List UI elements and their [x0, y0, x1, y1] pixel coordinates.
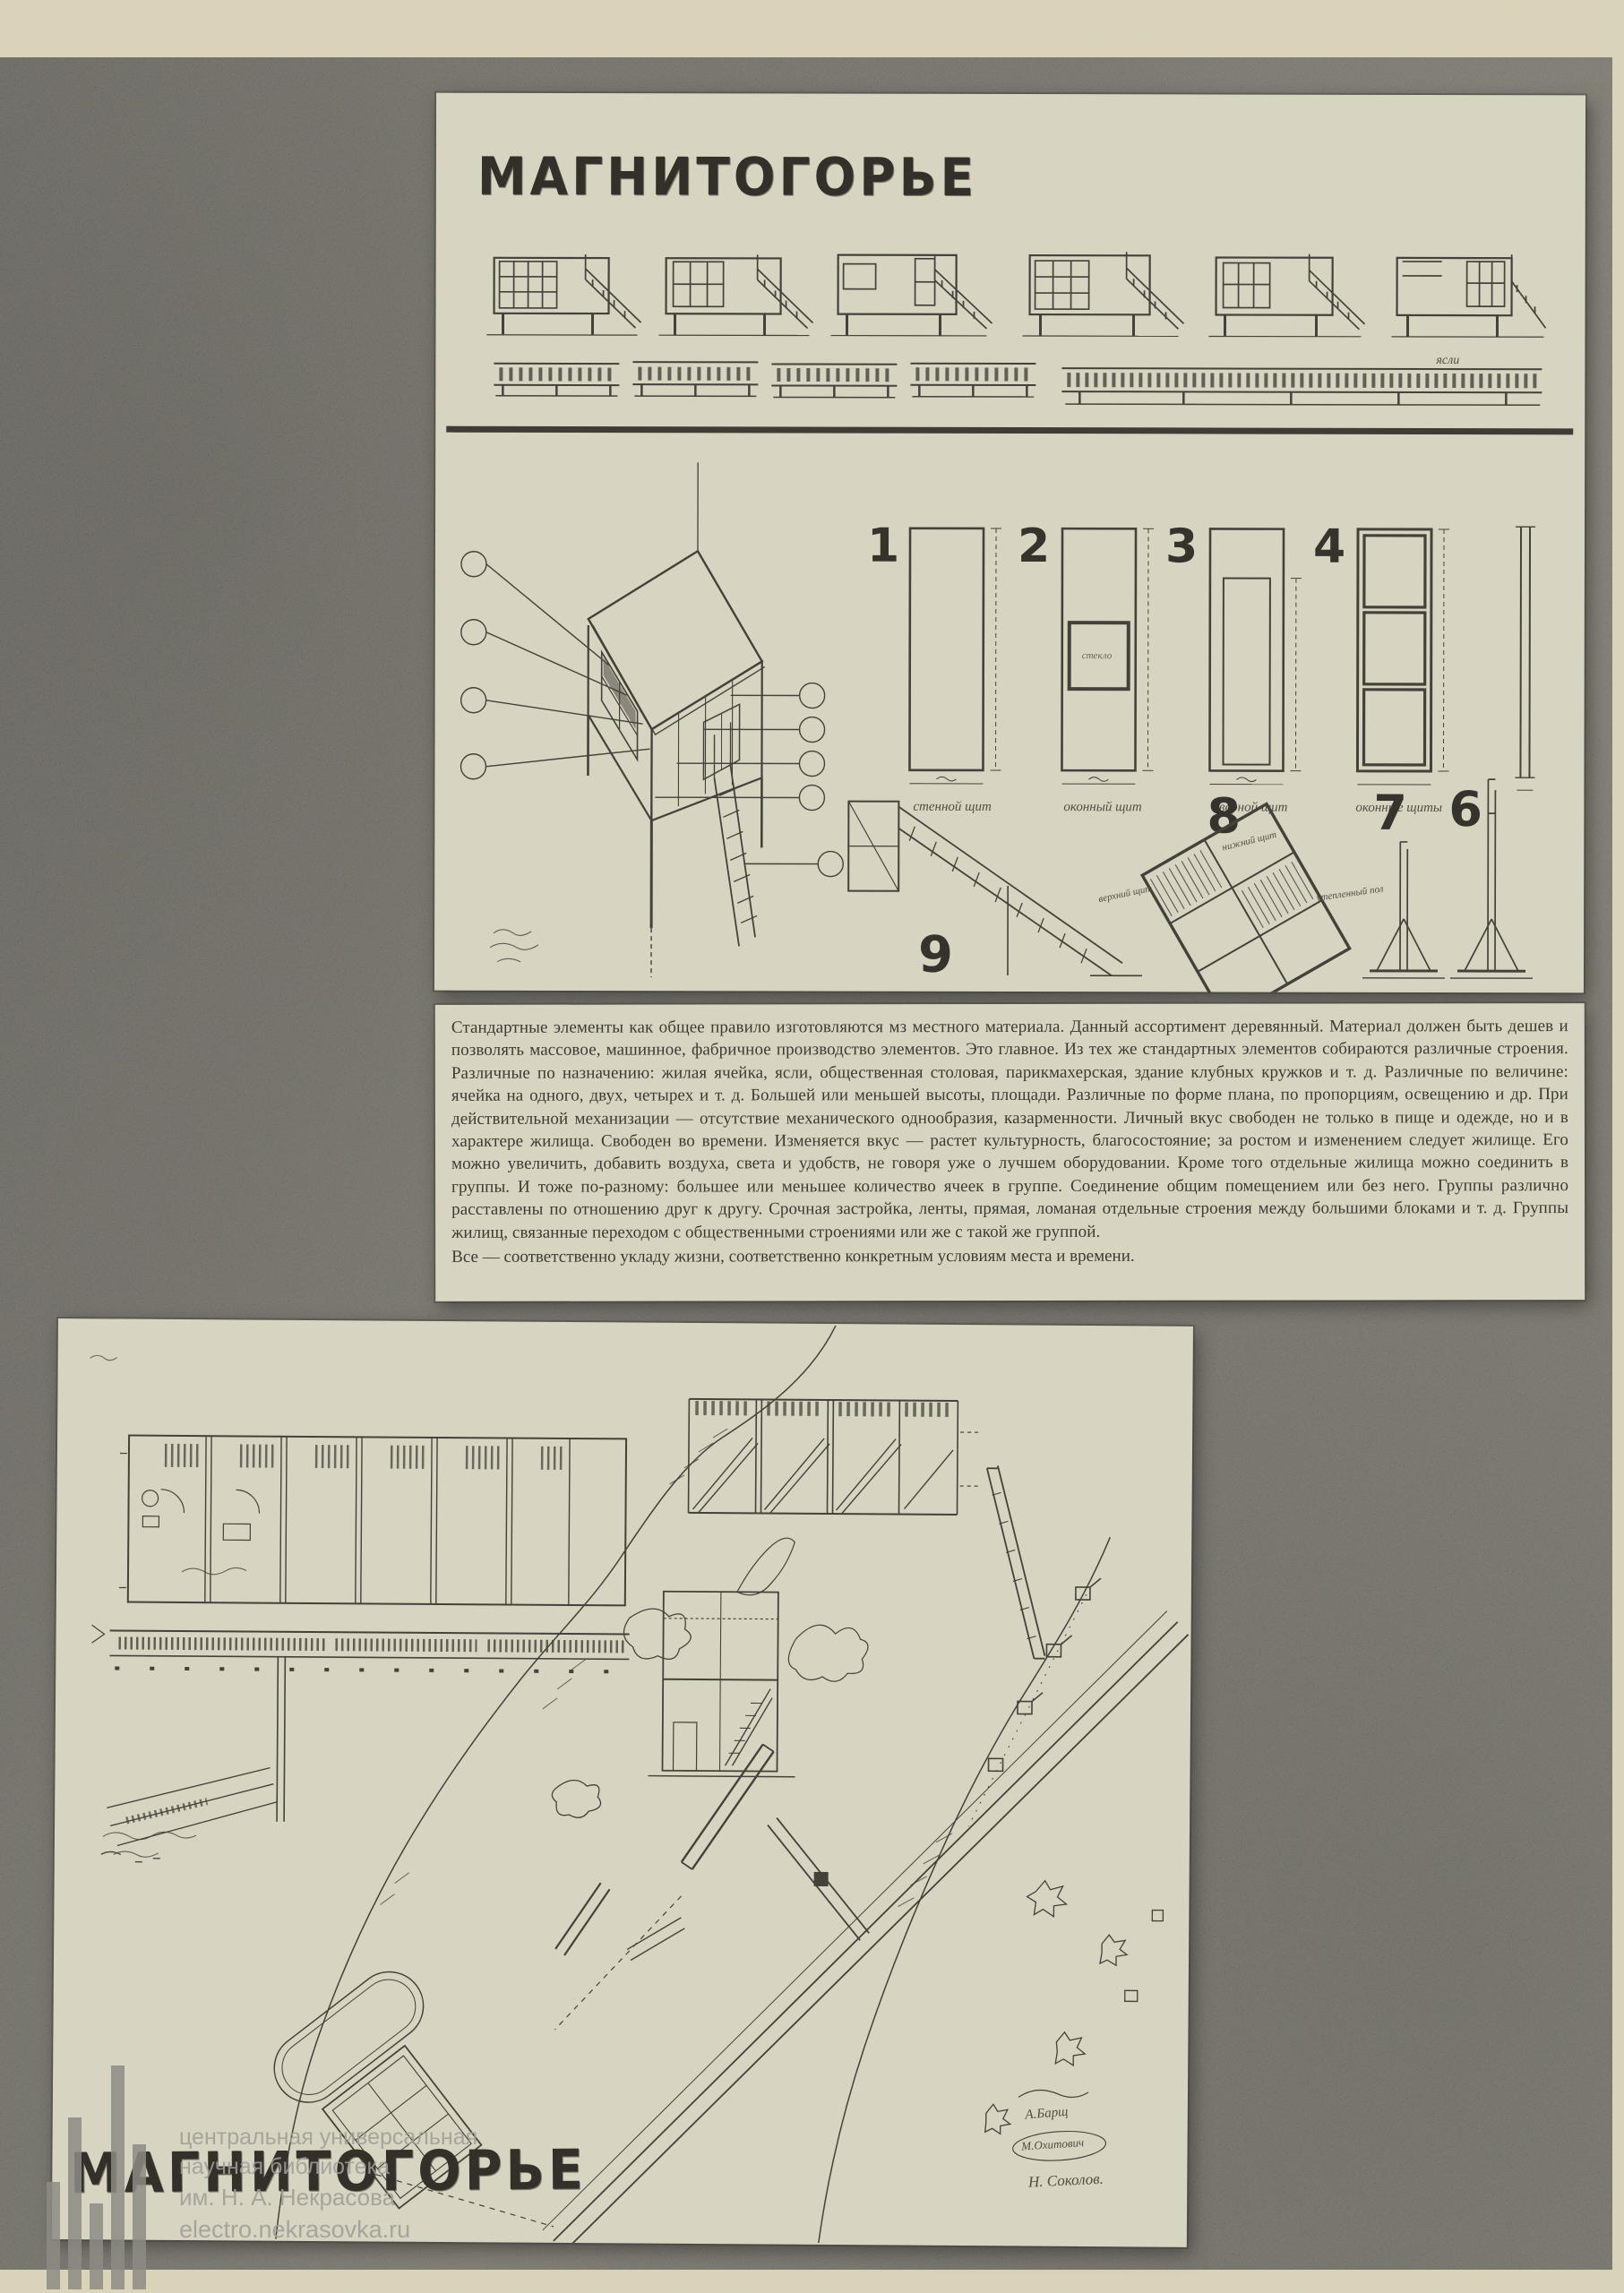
- element-number-3: 3: [1165, 520, 1198, 573]
- scanned-journal-page: { "page": { "background_color": "#3a3833…: [0, 0, 1624, 2293]
- panel-caption-2: оконный щит: [1063, 800, 1142, 814]
- panel-caption-1: стенной щит: [913, 800, 992, 814]
- frame-label-right: утепленный пол: [1315, 883, 1384, 903]
- floor-frame-drawing: нижний щит верхний щит утепленный пол: [1097, 803, 1385, 992]
- element-number-6: 6: [1448, 781, 1482, 837]
- site-plan-plate: А.Барщ М.Охитович Н. Соколов.: [52, 1318, 1193, 2247]
- wall-panel-diagrams: 1 2 3 4 стекло стенной щит оконный щит д…: [866, 520, 1535, 816]
- glass-label: стекло: [1082, 650, 1113, 661]
- element-number-4: 4: [1313, 520, 1345, 574]
- house-elevations-row: [485, 228, 1546, 355]
- strip-elevations-row: ясли: [485, 355, 1546, 426]
- watermark-line-3: им. Н. А. Некрасова: [179, 2184, 395, 2211]
- element-number-2: 2: [1018, 520, 1050, 573]
- description-text-block: Стандартные элементы как общее правило и…: [435, 1003, 1585, 1301]
- axonometric-house-drawing: [460, 462, 844, 978]
- signature-3: Н. Соколов.: [1027, 2170, 1104, 2191]
- signature-1: А.Барщ: [1024, 2105, 1069, 2123]
- element-number-7: 7: [1373, 785, 1407, 841]
- frame-label-left: верхний щит: [1097, 883, 1153, 905]
- watermark-line-1: центральная универсальная: [179, 2125, 477, 2151]
- signature-2: М.Охитович: [1020, 2135, 1085, 2152]
- watermark-line-2: научная библиотека: [179, 2154, 390, 2180]
- watermark-url: electro.nekrasovka.ru: [179, 2216, 410, 2244]
- stair-element-drawing: [848, 802, 1142, 976]
- site-plan-drawing: А.Барщ М.Охитович Н. Соколов.: [52, 1318, 1193, 2247]
- plate-title: МАГНИТОГОРЬЕ: [477, 146, 977, 208]
- yasli-label: ясли: [1435, 355, 1459, 367]
- closing-line: Все — соответственно укладу жизни, соотв…: [435, 1242, 1585, 1270]
- body-paragraph: Стандартные элементы как общее правило и…: [435, 1003, 1585, 1244]
- standard-elements-plate: МАГНИТОГОРЬЕ: [434, 93, 1585, 993]
- assembly-diagram: 1 2 3 4 стекло стенной щит оконный щит д…: [434, 426, 1585, 993]
- library-logo-icon: [47, 2042, 163, 2289]
- element-number-1: 1: [867, 520, 899, 573]
- page-edge: [1612, 0, 1624, 2293]
- element-number-9: 9: [918, 926, 953, 984]
- author-signatures: А.Барщ М.Охитович Н. Соколов.: [1011, 2090, 1107, 2191]
